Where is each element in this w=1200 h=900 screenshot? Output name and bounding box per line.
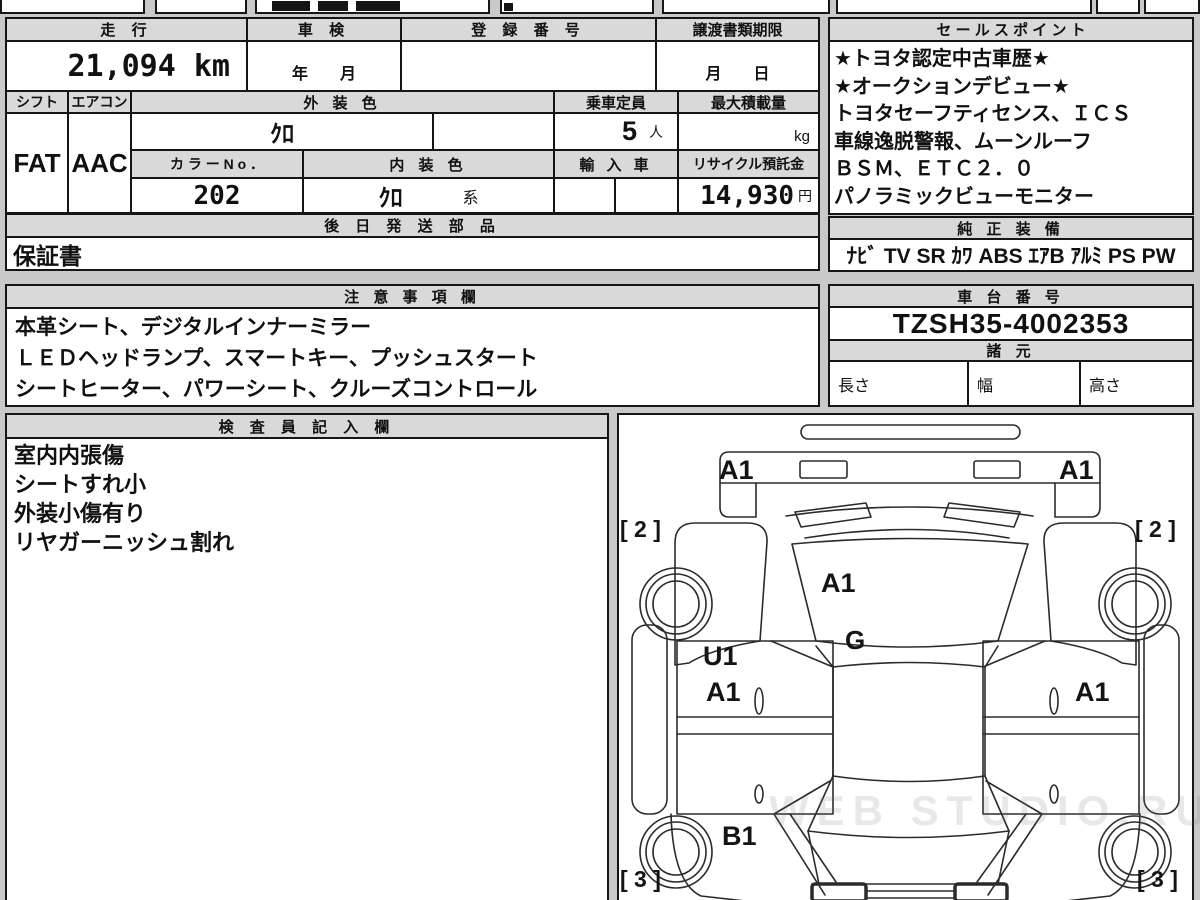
max-load-header: 最大積載量 [677, 90, 820, 114]
clipped-text-fragment [318, 1, 348, 11]
interior-color-text: ｸﾛ [378, 178, 402, 213]
damage-mark-bumper-left: A1 [719, 455, 754, 486]
recycle-header: リサイクル預託金 [677, 149, 820, 179]
equipment-header: 純 正 装 備 [828, 216, 1194, 240]
spec-length-cell: 長さ [828, 360, 969, 407]
panel-mark-front-left: [ 2 ] [620, 516, 661, 543]
clipped-row-cell [1144, 0, 1200, 14]
clipped-row-cell [155, 0, 247, 14]
mileage-value: 21,094 km [5, 40, 248, 92]
damage-mark-door-left: A1 [706, 677, 741, 708]
recycle-value: 14,930 円 [677, 177, 820, 214]
deadline-value: 月 日 [655, 40, 820, 92]
inspector-header: 検 査 員 記 入 欄 [5, 413, 609, 439]
note-line: 本革シート、デジタルインナーミラー [15, 312, 810, 343]
recycle-number: 14,930 [700, 181, 794, 211]
shift-header: シフト [5, 90, 69, 114]
clipped-row-cell [662, 0, 830, 14]
sales-points-body: ★トヨタ認定中古車歴★ ★オークションデビュー★ トヨタセーフティセンス、ＩＣＳ… [828, 40, 1194, 215]
panel-mark-front-right: [ 2 ] [1135, 516, 1176, 543]
inspection-header: 車 検 [246, 17, 402, 42]
capacity-number: 5 [622, 116, 637, 147]
damage-mark-rear-left: B1 [722, 821, 757, 852]
chassis-header: 車 台 番 号 [828, 284, 1194, 308]
spec-height-cell: 高さ [1079, 360, 1194, 407]
capacity-unit: 人 [649, 122, 663, 142]
sales-points-header: セ ー ル ス ポ イ ン ト [828, 17, 1194, 42]
later-parts-value: 保証書 [5, 236, 820, 271]
clipped-row-cell [1096, 0, 1140, 14]
spec-width-cell: 幅 [967, 360, 1081, 407]
color-no-header: カ ラ ー N o ． [130, 149, 304, 179]
watermark: WEB STUDIO.RU [769, 787, 1200, 835]
panel-mark-rear-right: [ 3 ] [1137, 866, 1178, 893]
registration-header: 登 録 番 号 [400, 17, 657, 42]
inspector-body: 室内内張傷 シートすれ小 外装小傷有り リヤガーニッシュ割れ [5, 437, 609, 900]
recycle-unit: 円 [798, 186, 812, 206]
inspection-value: 年 月 [246, 40, 402, 92]
auction-sheet: 走 行 車 検 登 録 番 号 譲渡書類期限 21,094 km 年 月 月 日… [0, 0, 1200, 900]
damage-diagram-box: WEB STUDIO.RU A1 A1 A1 G [ 2 ] [ 2 ] U1 … [617, 413, 1194, 900]
clipped-row-cell [500, 0, 654, 14]
inspector-line: リヤガーニッシュ割れ [14, 528, 594, 557]
import-header: 輸 入 車 [553, 149, 679, 179]
notes-body: 本革シート、デジタルインナーミラー ＬＥＤヘッドランプ、スマートキー、プッシュス… [5, 307, 820, 407]
damage-mark-hood: A1 [821, 568, 856, 599]
clipped-row-cell [836, 0, 1092, 14]
interior-color-suffix: 系 [462, 184, 478, 208]
clipped-text-fragment [356, 1, 400, 11]
damage-mark-bumper-right: A1 [1059, 455, 1094, 486]
capacity-header: 乗車定員 [553, 90, 679, 114]
note-line: ＬＥＤヘッドランプ、スマートキー、プッシュスタート [15, 343, 810, 374]
notes-header: 注 意 事 項 欄 [5, 284, 820, 309]
clipped-row-cell [0, 0, 145, 14]
damage-mark-door-left-upper: U1 [703, 641, 738, 672]
sales-point-line: ＢＳＭ、ＥＴＣ２．０ [834, 156, 1192, 184]
specs-header: 諸 元 [828, 339, 1194, 362]
inspector-line: 外装小傷有り [14, 499, 594, 528]
sales-point-line: パノラミックビューモニター [834, 184, 1192, 212]
clipped-text-fragment [504, 3, 513, 11]
sales-point-line: トヨタセーフティセンス、ＩＣＳ [834, 101, 1192, 129]
aircon-value: AAC [67, 112, 132, 214]
damage-mark-cowl: G [845, 625, 865, 656]
damage-mark-door-right: A1 [1075, 677, 1110, 708]
shift-value: FAT [5, 112, 69, 214]
chassis-value: TZSH35-4002353 [828, 306, 1194, 341]
note-line: シートヒーター、パワーシート、クルーズコントロール [15, 374, 810, 405]
import-value-cell-2 [614, 177, 679, 214]
registration-value [400, 40, 657, 92]
max-load-value: kg [677, 112, 820, 151]
aircon-header: エアコン [67, 90, 132, 114]
exterior-color-header: 外 装 色 [130, 90, 555, 114]
panel-mark-rear-left: [ 3 ] [620, 866, 661, 893]
sales-point-line: 車線逸脱警報、ムーンルーフ [834, 129, 1192, 157]
inspector-line: 室内内張傷 [14, 441, 594, 470]
later-parts-header: 後 日 発 送 部 品 [5, 213, 820, 238]
max-load-unit: kg [794, 128, 810, 145]
inspector-line: シートすれ小 [14, 470, 594, 499]
capacity-value: 5 人 [553, 112, 679, 151]
equipment-value: ﾅﾋﾞ TV SR ｶﾜ ABS ｴｱB ｱﾙﾐ PS PW [828, 238, 1194, 272]
exterior-color-value: ｸﾛ [130, 112, 434, 151]
import-value-cell-1 [553, 177, 616, 214]
sales-point-line: ★オークションデビュー★ [834, 74, 1192, 102]
color-no-value: 202 [130, 177, 304, 214]
mileage-header: 走 行 [5, 17, 248, 42]
interior-color-header: 内 装 色 [302, 149, 555, 179]
exterior-color-extra-cell [432, 112, 555, 151]
interior-color-value: ｸﾛ 系 [302, 177, 555, 214]
sales-point-line: ★トヨタ認定中古車歴★ [834, 46, 1192, 74]
clipped-text-fragment [272, 1, 310, 11]
deadline-header: 譲渡書類期限 [655, 17, 820, 42]
